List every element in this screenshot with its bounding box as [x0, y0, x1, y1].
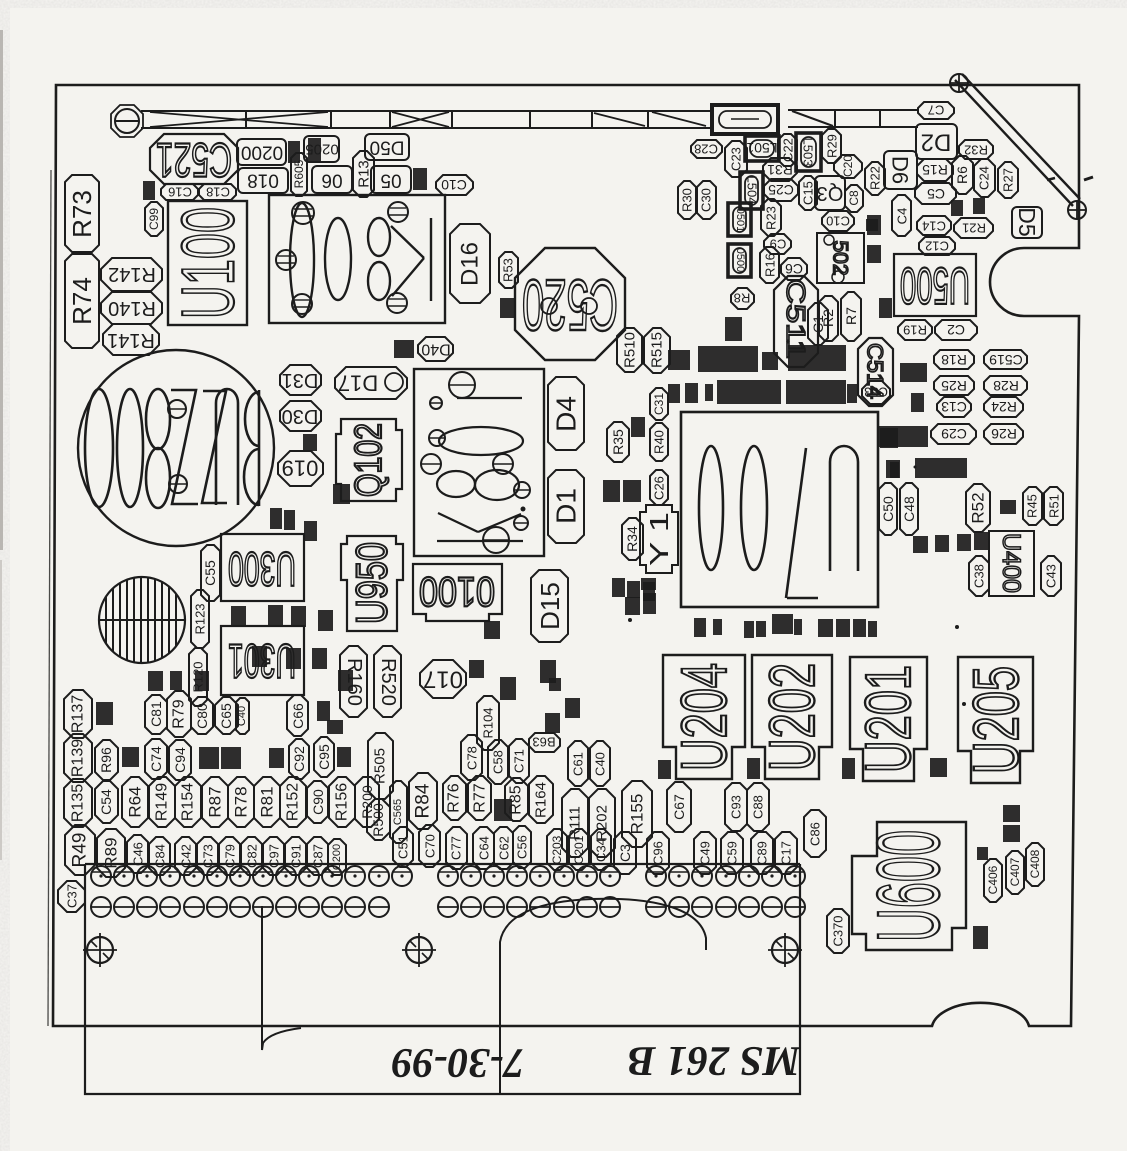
svg-text:R22: R22	[868, 166, 883, 190]
svg-text:R73: R73	[67, 190, 97, 238]
svg-text:R15: R15	[922, 162, 948, 178]
svg-text:R515: R515	[649, 332, 666, 368]
svg-text:D4: D4	[551, 396, 582, 432]
svg-text:R35: R35	[610, 429, 626, 455]
svg-text:L504: L504	[745, 176, 760, 205]
svg-text:R18: R18	[941, 352, 967, 368]
svg-text:R160: R160	[343, 658, 365, 706]
svg-text:R505: R505	[372, 748, 389, 784]
svg-text:D2: D2	[921, 129, 952, 156]
svg-text:C70: C70	[423, 834, 438, 858]
svg-text:D17: D17	[338, 371, 378, 396]
svg-text:0200: 0200	[241, 142, 283, 163]
svg-text:U202: U202	[756, 663, 828, 771]
svg-text:U300: U300	[228, 542, 296, 595]
svg-text:C96: C96	[651, 841, 666, 865]
svg-text:C29: C29	[941, 426, 967, 442]
svg-text:C14: C14	[922, 219, 946, 234]
svg-text:C30: C30	[699, 188, 714, 212]
svg-text:06: 06	[321, 170, 342, 191]
svg-text:0100: 0100	[419, 569, 495, 616]
svg-text:R87: R87	[206, 786, 225, 817]
svg-text:R34: R34	[624, 526, 640, 552]
svg-text:R85: R85	[508, 785, 525, 814]
svg-text:C28: C28	[694, 142, 718, 157]
svg-text:R27: R27	[1001, 168, 1016, 192]
svg-text:U204: U204	[668, 663, 740, 771]
svg-text:C5: C5	[927, 186, 945, 202]
svg-text:C65: C65	[218, 703, 234, 729]
svg-text:C31: C31	[652, 393, 666, 415]
svg-text:R510: R510	[622, 332, 639, 368]
svg-text:C94: C94	[172, 747, 188, 773]
svg-text:C78: C78	[465, 746, 480, 770]
svg-text:C37: C37	[65, 884, 80, 908]
svg-text:C53: C53	[864, 385, 888, 400]
svg-text:C24: C24	[977, 166, 992, 190]
svg-text:C59: C59	[725, 841, 740, 865]
svg-text:C12: C12	[925, 239, 949, 254]
svg-text:0500: 0500	[734, 248, 746, 272]
svg-text:R51: R51	[1047, 494, 1062, 518]
svg-text:R81: R81	[258, 786, 277, 817]
svg-text:0501: 0501	[734, 208, 746, 232]
svg-text:D5: D5	[1014, 207, 1040, 236]
svg-text:R8: R8	[734, 291, 751, 306]
svg-text:R142: R142	[108, 263, 156, 285]
svg-text:R78: R78	[232, 786, 251, 817]
svg-text:C15: C15	[801, 181, 816, 205]
svg-text:R30: R30	[680, 188, 695, 212]
svg-text:C2: C2	[947, 322, 965, 338]
svg-text:R6: R6	[954, 166, 970, 184]
svg-text:C370: C370	[831, 915, 846, 946]
svg-text:C521: C521	[156, 133, 232, 186]
svg-text:L503: L503	[801, 138, 816, 167]
svg-text:7-30-99: 7-30-99	[392, 1039, 525, 1085]
svg-text:C23: C23	[729, 147, 744, 171]
svg-text:0205: 0205	[305, 141, 338, 158]
svg-text:R156: R156	[334, 783, 351, 821]
svg-text:C89: C89	[755, 841, 770, 865]
svg-text:C10: C10	[826, 214, 850, 229]
svg-text:L501: L501	[746, 140, 777, 156]
svg-text:R74: R74	[67, 277, 97, 325]
svg-text:R111: R111	[567, 806, 584, 840]
svg-text:D50: D50	[370, 137, 405, 158]
svg-text:B63: B63	[532, 735, 555, 750]
svg-text:C565: C565	[392, 799, 404, 825]
svg-text:C50: C50	[880, 496, 896, 522]
svg-text:R152: R152	[285, 783, 302, 821]
svg-text:Q3: Q3	[817, 182, 844, 204]
svg-text:C88: C88	[751, 795, 766, 819]
svg-text:R135: R135	[70, 784, 87, 822]
svg-text:R49: R49	[70, 833, 91, 868]
svg-text:D31: D31	[282, 369, 319, 391]
svg-text:C9: C9	[770, 237, 787, 252]
svg-text:R19: R19	[903, 323, 927, 338]
svg-text:C90: C90	[310, 789, 326, 815]
svg-text:C48: C48	[901, 496, 917, 522]
svg-text:D6: D6	[888, 156, 913, 184]
svg-text:R123: R123	[193, 603, 208, 634]
svg-text:R79: R79	[171, 699, 188, 728]
svg-text:R25: R25	[941, 378, 967, 394]
svg-text:R24: R24	[991, 399, 1017, 415]
svg-text:U600: U600	[859, 830, 958, 942]
svg-text:Q102: Q102	[348, 423, 390, 497]
svg-text:C7: C7	[928, 103, 945, 118]
svg-text:D40: D40	[421, 341, 450, 358]
svg-text:R40: R40	[652, 430, 667, 454]
svg-text:C67: C67	[671, 794, 687, 820]
svg-text:C43: C43	[1044, 564, 1059, 588]
svg-text:C86: C86	[808, 822, 823, 846]
svg-text:R164: R164	[533, 782, 550, 818]
svg-text:C4: C4	[895, 208, 910, 225]
svg-text:R45: R45	[1025, 494, 1040, 518]
svg-text:R31: R31	[767, 162, 793, 178]
svg-text:C18: C18	[206, 185, 230, 200]
svg-text:R76: R76	[446, 783, 463, 812]
svg-text:C55: C55	[202, 560, 218, 586]
svg-text:C8: C8	[847, 190, 861, 206]
svg-text:C64: C64	[477, 836, 492, 860]
svg-text:C17: C17	[779, 841, 794, 865]
svg-text:D1: D1	[551, 488, 582, 524]
svg-text:D15: D15	[535, 582, 565, 630]
svg-text:U100: U100	[167, 207, 250, 319]
svg-text:R29: R29	[825, 134, 840, 158]
svg-text:C16: C16	[168, 185, 192, 200]
svg-text:U950: U950	[348, 542, 397, 624]
svg-text:R500: R500	[370, 803, 386, 837]
svg-text:R202: R202	[594, 805, 611, 841]
svg-text:R77: R77	[472, 783, 489, 812]
svg-text:R26: R26	[991, 426, 1017, 442]
svg-text:R23: R23	[764, 206, 779, 230]
svg-text:R21: R21	[962, 221, 986, 236]
svg-text:C10: C10	[441, 177, 467, 193]
svg-text:018: 018	[247, 170, 279, 191]
svg-text:R7: R7	[843, 307, 859, 325]
svg-text:D16: D16	[457, 242, 484, 286]
svg-text:R140: R140	[108, 297, 156, 319]
svg-text:C80: C80	[194, 703, 210, 729]
svg-text:C74: C74	[148, 746, 164, 772]
svg-text:R141: R141	[107, 329, 155, 351]
svg-text:C26: C26	[652, 476, 667, 500]
svg-text:R149: R149	[154, 783, 171, 821]
svg-text:R520: R520	[377, 658, 399, 706]
svg-text:U201: U201	[852, 665, 924, 773]
svg-text:C6: C6	[785, 261, 803, 277]
svg-text:C54: C54	[98, 789, 114, 815]
svg-text:05: 05	[380, 170, 401, 191]
svg-text:U400: U400	[997, 533, 1025, 593]
svg-text:R16: R16	[763, 253, 778, 277]
svg-text:U205: U205	[960, 666, 1032, 774]
svg-text:R2: R2	[820, 309, 836, 327]
svg-text:C25: C25	[768, 182, 794, 198]
svg-text:R154: R154	[180, 783, 197, 821]
svg-text:R96: R96	[98, 747, 114, 773]
svg-text:C407: C407	[1008, 857, 1022, 886]
svg-text:C408: C408	[1028, 849, 1042, 878]
svg-text:R28: R28	[993, 378, 1019, 394]
svg-text:C49: C49	[698, 841, 713, 865]
svg-text:C66: C66	[290, 703, 306, 729]
svg-text:C58: C58	[491, 750, 506, 774]
svg-text:C95: C95	[316, 744, 332, 770]
svg-text:C92: C92	[291, 746, 307, 772]
svg-text:C520: C520	[522, 264, 618, 344]
svg-text:U500: U500	[900, 256, 970, 314]
svg-text:C99: C99	[147, 208, 161, 230]
svg-text:C38: C38	[972, 564, 987, 588]
svg-text:R52: R52	[969, 492, 988, 523]
svg-text:C62: C62	[497, 836, 512, 860]
svg-text:R32: R32	[964, 143, 988, 158]
svg-text:C40: C40	[236, 706, 248, 726]
svg-text:R139: R139	[70, 739, 87, 777]
svg-text:C71: C71	[512, 749, 527, 773]
svg-text:502: 502	[829, 240, 852, 275]
svg-text:C77: C77	[449, 836, 464, 860]
svg-text:R84: R84	[413, 783, 434, 818]
svg-text:C40: C40	[593, 752, 608, 776]
svg-text:C519: C519	[989, 352, 1023, 368]
svg-text:R53: R53	[501, 258, 516, 282]
svg-text:017: 017	[423, 666, 463, 693]
svg-text:C93: C93	[729, 795, 744, 819]
svg-text:MS 261 B: MS 261 B	[628, 1037, 802, 1083]
svg-text:C20: C20	[841, 155, 855, 177]
svg-text:019: 019	[282, 456, 319, 481]
svg-text:C406: C406	[986, 865, 1000, 894]
svg-text:C81: C81	[148, 701, 164, 727]
svg-text:R605: R605	[292, 159, 306, 188]
svg-text:C13: C13	[941, 399, 967, 415]
svg-text:C56: C56	[515, 835, 530, 859]
svg-text:R137: R137	[70, 695, 87, 733]
svg-text:R155: R155	[628, 794, 647, 835]
svg-text:R64: R64	[126, 786, 145, 817]
svg-text:Y 1: Y 1	[644, 512, 674, 566]
svg-text:D30: D30	[282, 405, 319, 427]
svg-text:C61: C61	[571, 752, 586, 776]
svg-text:C46: C46	[131, 842, 146, 866]
svg-text:R104: R104	[481, 707, 496, 738]
svg-text:C51: C51	[396, 835, 411, 859]
svg-text:R13: R13	[356, 160, 373, 188]
